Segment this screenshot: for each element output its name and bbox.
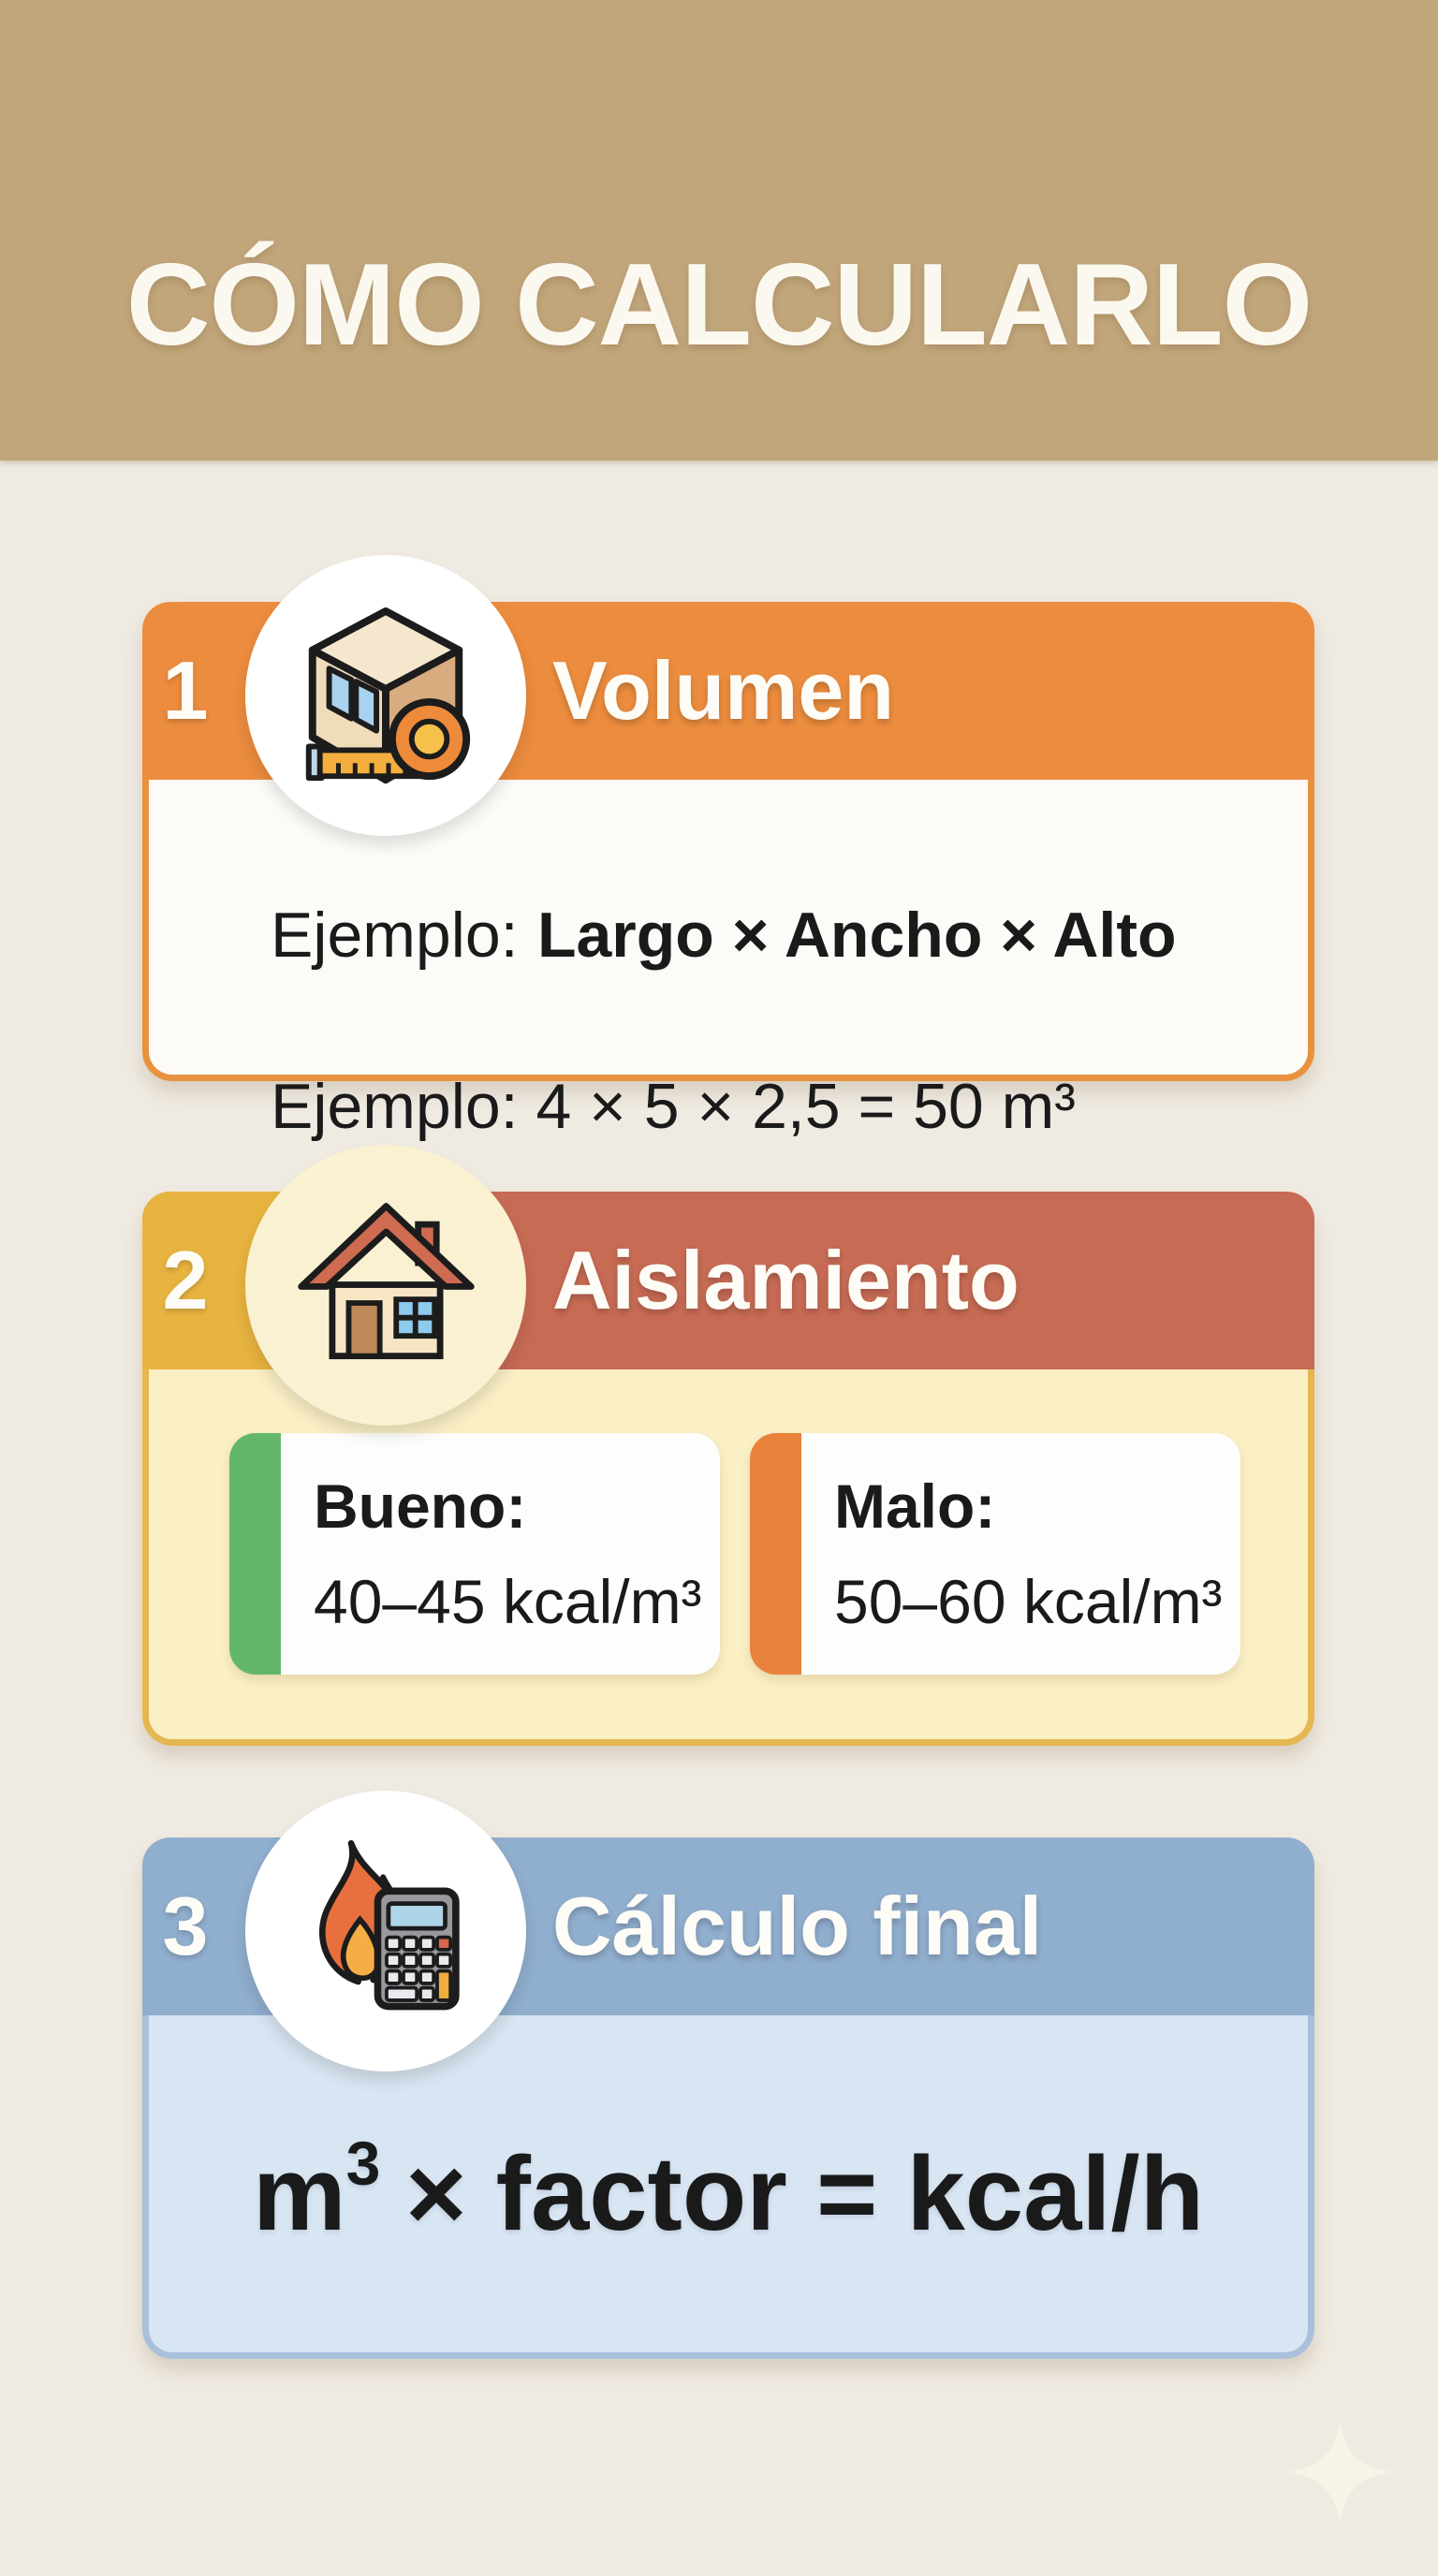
house-icon [290, 1190, 482, 1382]
step-1-header: 1 [142, 602, 1314, 780]
flame-and-calculator-icon [284, 1829, 488, 2033]
step-number-2: 2 [142, 1233, 228, 1328]
step-3-icon-circle [245, 1791, 526, 2071]
bad-insulation-label: Malo: [834, 1471, 1240, 1542]
final-formula: m3× factor = kcal/h [253, 2133, 1204, 2254]
formula-rest: × factor = kcal/h [405, 2135, 1204, 2252]
box-with-measuring-tape-icon [288, 598, 483, 793]
step-number-3: 3 [142, 1879, 228, 1974]
infographic-page: { "page": { "title": "CÓMO CALCULARLO", … [0, 0, 1438, 2576]
formula-base: m [253, 2135, 346, 2252]
insulation-option-good: Bueno: 40–45 kcal/m³ [229, 1433, 720, 1675]
step-card-volumen: 1 [142, 602, 1314, 1081]
insulation-option-bad: Malo: 50–60 kcal/m³ [750, 1433, 1240, 1675]
formula-exponent: 3 [346, 2129, 381, 2198]
bad-insulation-value: 50–60 kcal/m³ [834, 1566, 1240, 1637]
step-3-header: 3 [142, 1837, 1314, 2015]
volume-formula: Largo × Ancho × Alto [537, 899, 1177, 972]
good-insulation-label: Bueno: [314, 1471, 720, 1542]
volume-formula-line: Ejemplo: Largo × Ancho × Alto [271, 881, 1289, 988]
step-2-body: Bueno: 40–45 kcal/m³ Malo: 50–60 kcal/m³ [142, 1369, 1314, 1746]
step-1-body: Ejemplo: Largo × Ancho × Alto Ejemplo: 4… [142, 780, 1314, 1081]
page-title: CÓMO CALCULARLO [126, 89, 1312, 372]
step-3-title: Cálculo final [552, 1879, 1042, 1974]
good-insulation-value: 40–45 kcal/m³ [314, 1566, 720, 1637]
step-3-body: m3× factor = kcal/h [142, 2015, 1314, 2359]
step-number-1: 1 [142, 643, 228, 739]
step-1-icon-circle [245, 555, 526, 836]
step-1-title: Volumen [552, 643, 894, 739]
step-2-header: 2 Aislamiento [142, 1192, 1314, 1369]
step-2-icon-circle [245, 1145, 526, 1426]
example-label: Ejemplo: [271, 899, 519, 972]
volume-example-line: Ejemplo: 4 × 5 × 2,5 = 50 m³ [271, 1052, 1289, 1160]
step-card-calculo-final: 3 [142, 1837, 1314, 2359]
title-banner: CÓMO CALCULARLO [0, 0, 1438, 461]
sparkle-icon [1284, 2417, 1395, 2527]
step-card-aislamiento: 2 Aislamiento Bueno: [142, 1192, 1314, 1746]
insulation-options: Bueno: 40–45 kcal/m³ Malo: 50–60 kcal/m³ [229, 1433, 1308, 1675]
step-2-title: Aislamiento [552, 1233, 1020, 1328]
